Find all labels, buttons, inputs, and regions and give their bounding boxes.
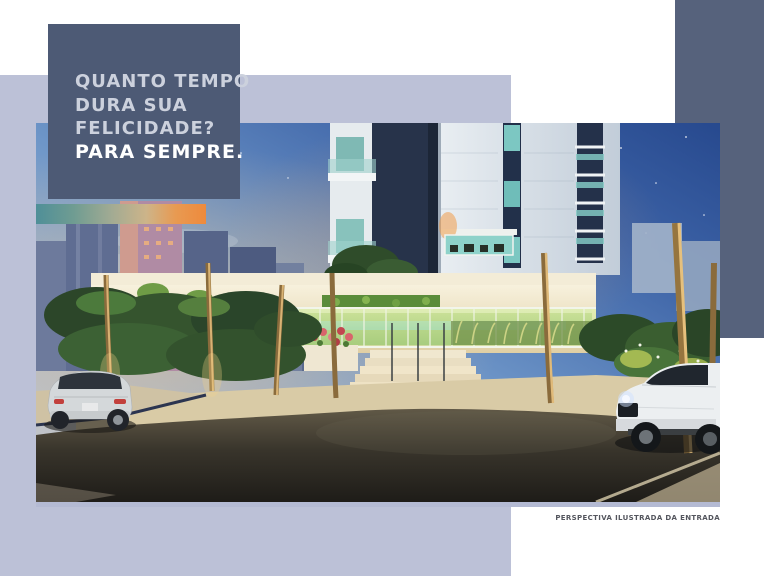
- photo-caption: PERSPECTIVA ILUSTRADA DA ENTRADA: [420, 514, 720, 522]
- headline-line-3: FELICIDADE?: [75, 117, 240, 141]
- car-left: [44, 371, 136, 433]
- headline-box: QUANTO TEMPO DURA SUA FELICIDADE? PARA S…: [48, 24, 240, 199]
- headline-line-2: DURA SUA: [75, 94, 240, 118]
- ornamental-grasses: [451, 321, 599, 345]
- photo-underlip-strip: [36, 502, 720, 507]
- headline-line-1: QUANTO TEMPO: [75, 70, 240, 94]
- slide-canvas: QUANTO TEMPO DURA SUA FELICIDADE? PARA S…: [0, 0, 768, 576]
- headline-emphasis: PARA SEMPRE.: [75, 141, 240, 165]
- brand-gradient-bar: [36, 204, 206, 224]
- light-tower: [438, 123, 620, 275]
